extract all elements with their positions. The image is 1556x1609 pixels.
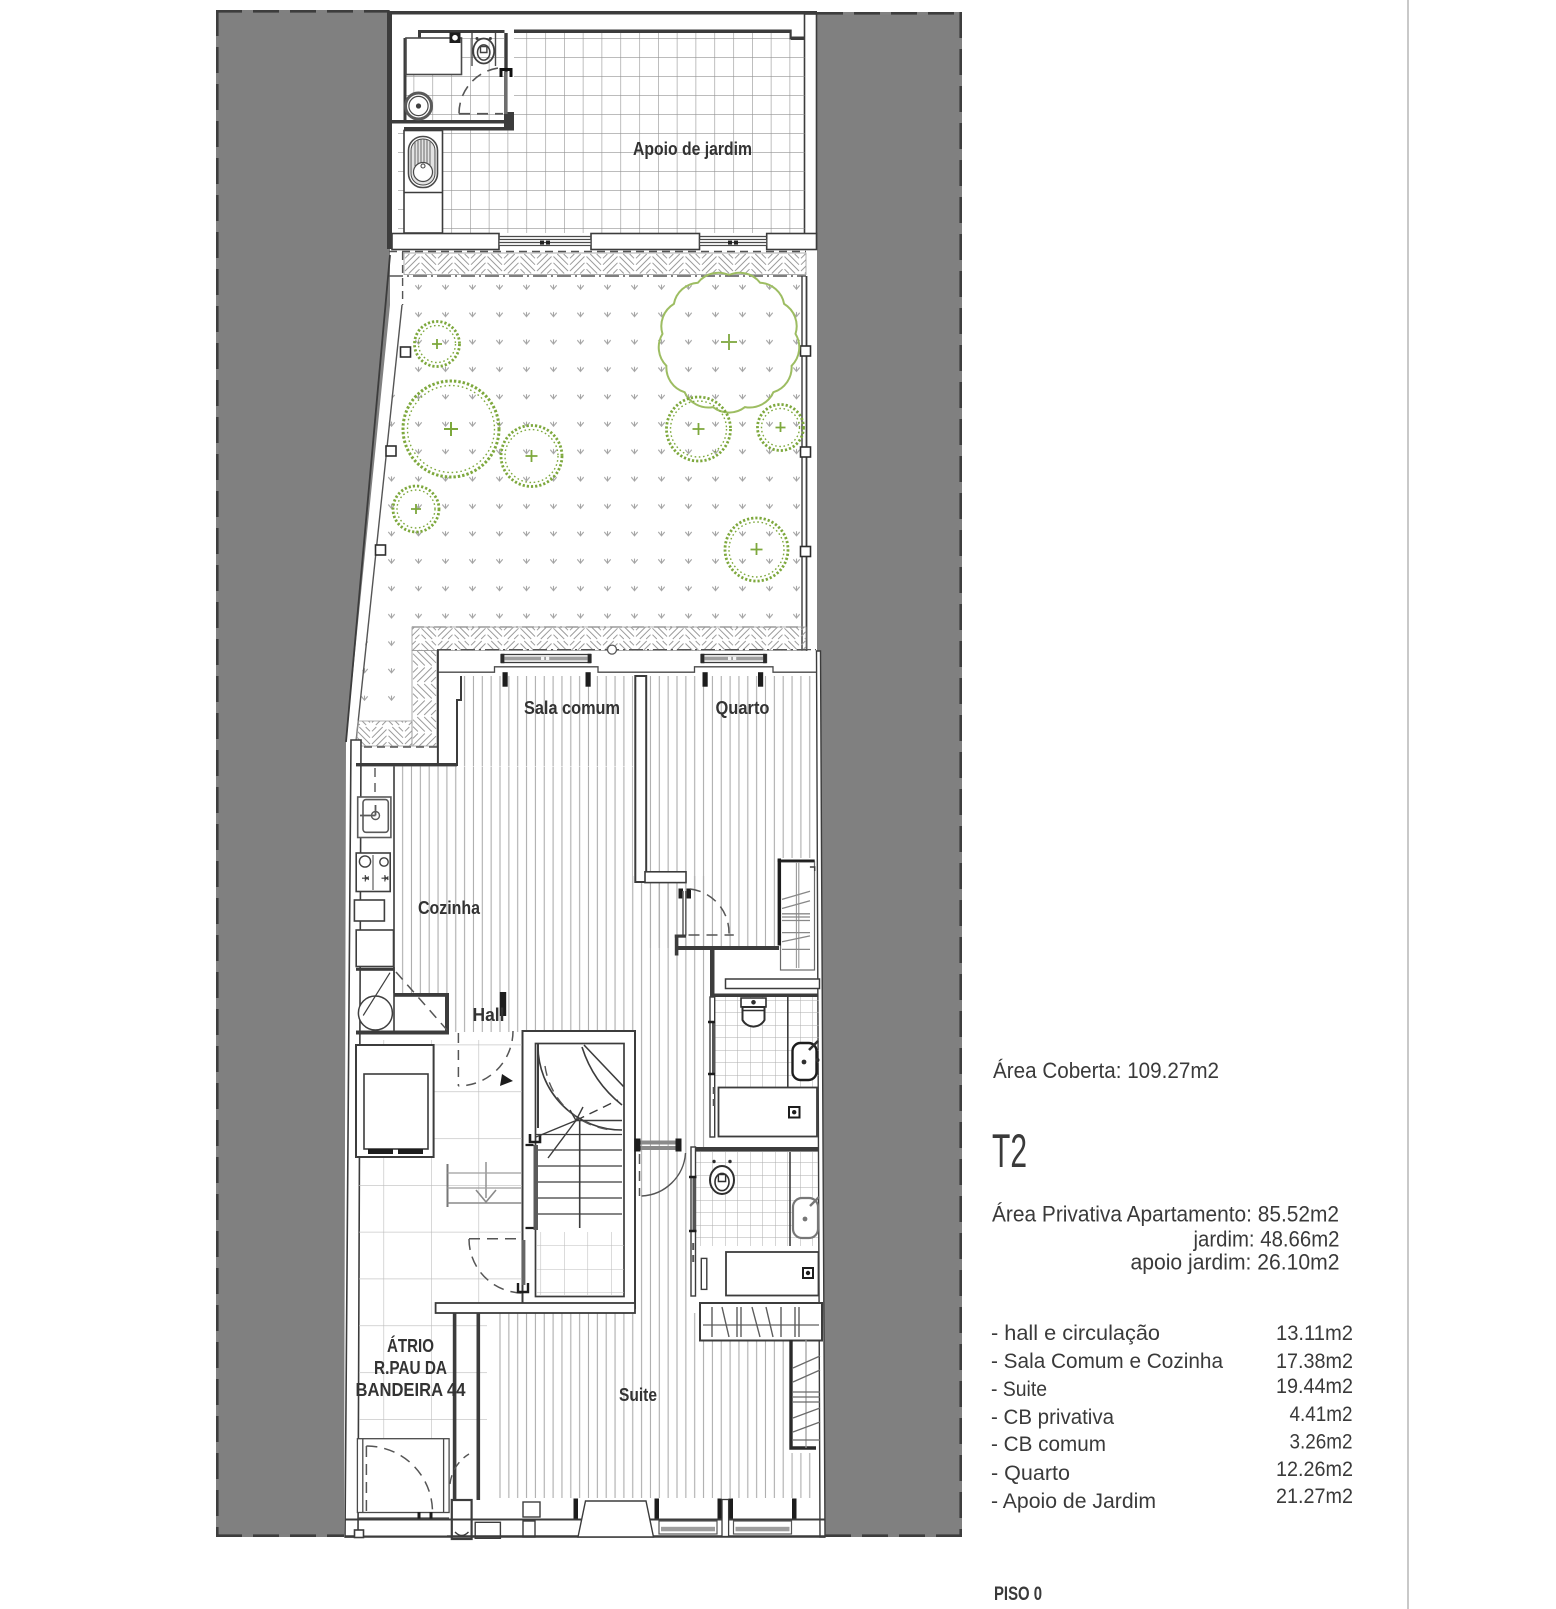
svg-text:BANDEIRA 44: BANDEIRA 44 [356, 1380, 466, 1400]
svg-text:apoio jardim: 26.10m2: apoio jardim: 26.10m2 [1131, 1250, 1340, 1275]
svg-text:4.41m2: 4.41m2 [1290, 1402, 1353, 1426]
svg-text:Suite: Suite [619, 1385, 657, 1405]
svg-text:12.26m2: 12.26m2 [1276, 1457, 1353, 1481]
svg-text:19.44m2: 19.44m2 [1276, 1374, 1353, 1398]
svg-text:Quarto: Quarto [716, 698, 770, 718]
svg-text:21.27m2: 21.27m2 [1276, 1484, 1353, 1508]
svg-text:- hall e circulação: - hall e circulação [991, 1321, 1160, 1345]
svg-text:Apoio de jardim: Apoio de jardim [633, 138, 752, 159]
svg-text:3.26m2: 3.26m2 [1290, 1430, 1353, 1454]
svg-text:T2: T2 [992, 1124, 1027, 1177]
svg-text:jardim: 48.66m2: jardim: 48.66m2 [1193, 1227, 1340, 1252]
svg-text:Cozinha: Cozinha [418, 898, 481, 918]
svg-text:- Suite: - Suite [991, 1377, 1047, 1401]
svg-text:- Quarto: - Quarto [991, 1461, 1070, 1485]
svg-text:Área Coberta: 109.27m2: Área Coberta: 109.27m2 [993, 1058, 1219, 1083]
svg-text:ÁTRIO: ÁTRIO [387, 1335, 434, 1356]
svg-text:R.PAU DA: R.PAU DA [374, 1358, 447, 1378]
svg-text:- CB privativa: - CB privativa [991, 1405, 1114, 1429]
svg-text:13.11m2: 13.11m2 [1276, 1321, 1353, 1345]
svg-text:17.38m2: 17.38m2 [1276, 1349, 1353, 1373]
svg-text:PISO 0: PISO 0 [994, 1584, 1042, 1605]
svg-text:- Apoio de Jardim: - Apoio de Jardim [991, 1489, 1156, 1513]
svg-text:- CB comum: - CB comum [991, 1432, 1106, 1456]
svg-text:- Sala Comum e Cozinha: - Sala Comum e Cozinha [991, 1349, 1223, 1373]
svg-text:Área Privativa Apartamento: 85: Área Privativa Apartamento: 85.52m2 [992, 1202, 1339, 1227]
svg-text:Sala comum: Sala comum [524, 698, 620, 718]
svg-text:Hall: Hall [473, 1005, 505, 1025]
